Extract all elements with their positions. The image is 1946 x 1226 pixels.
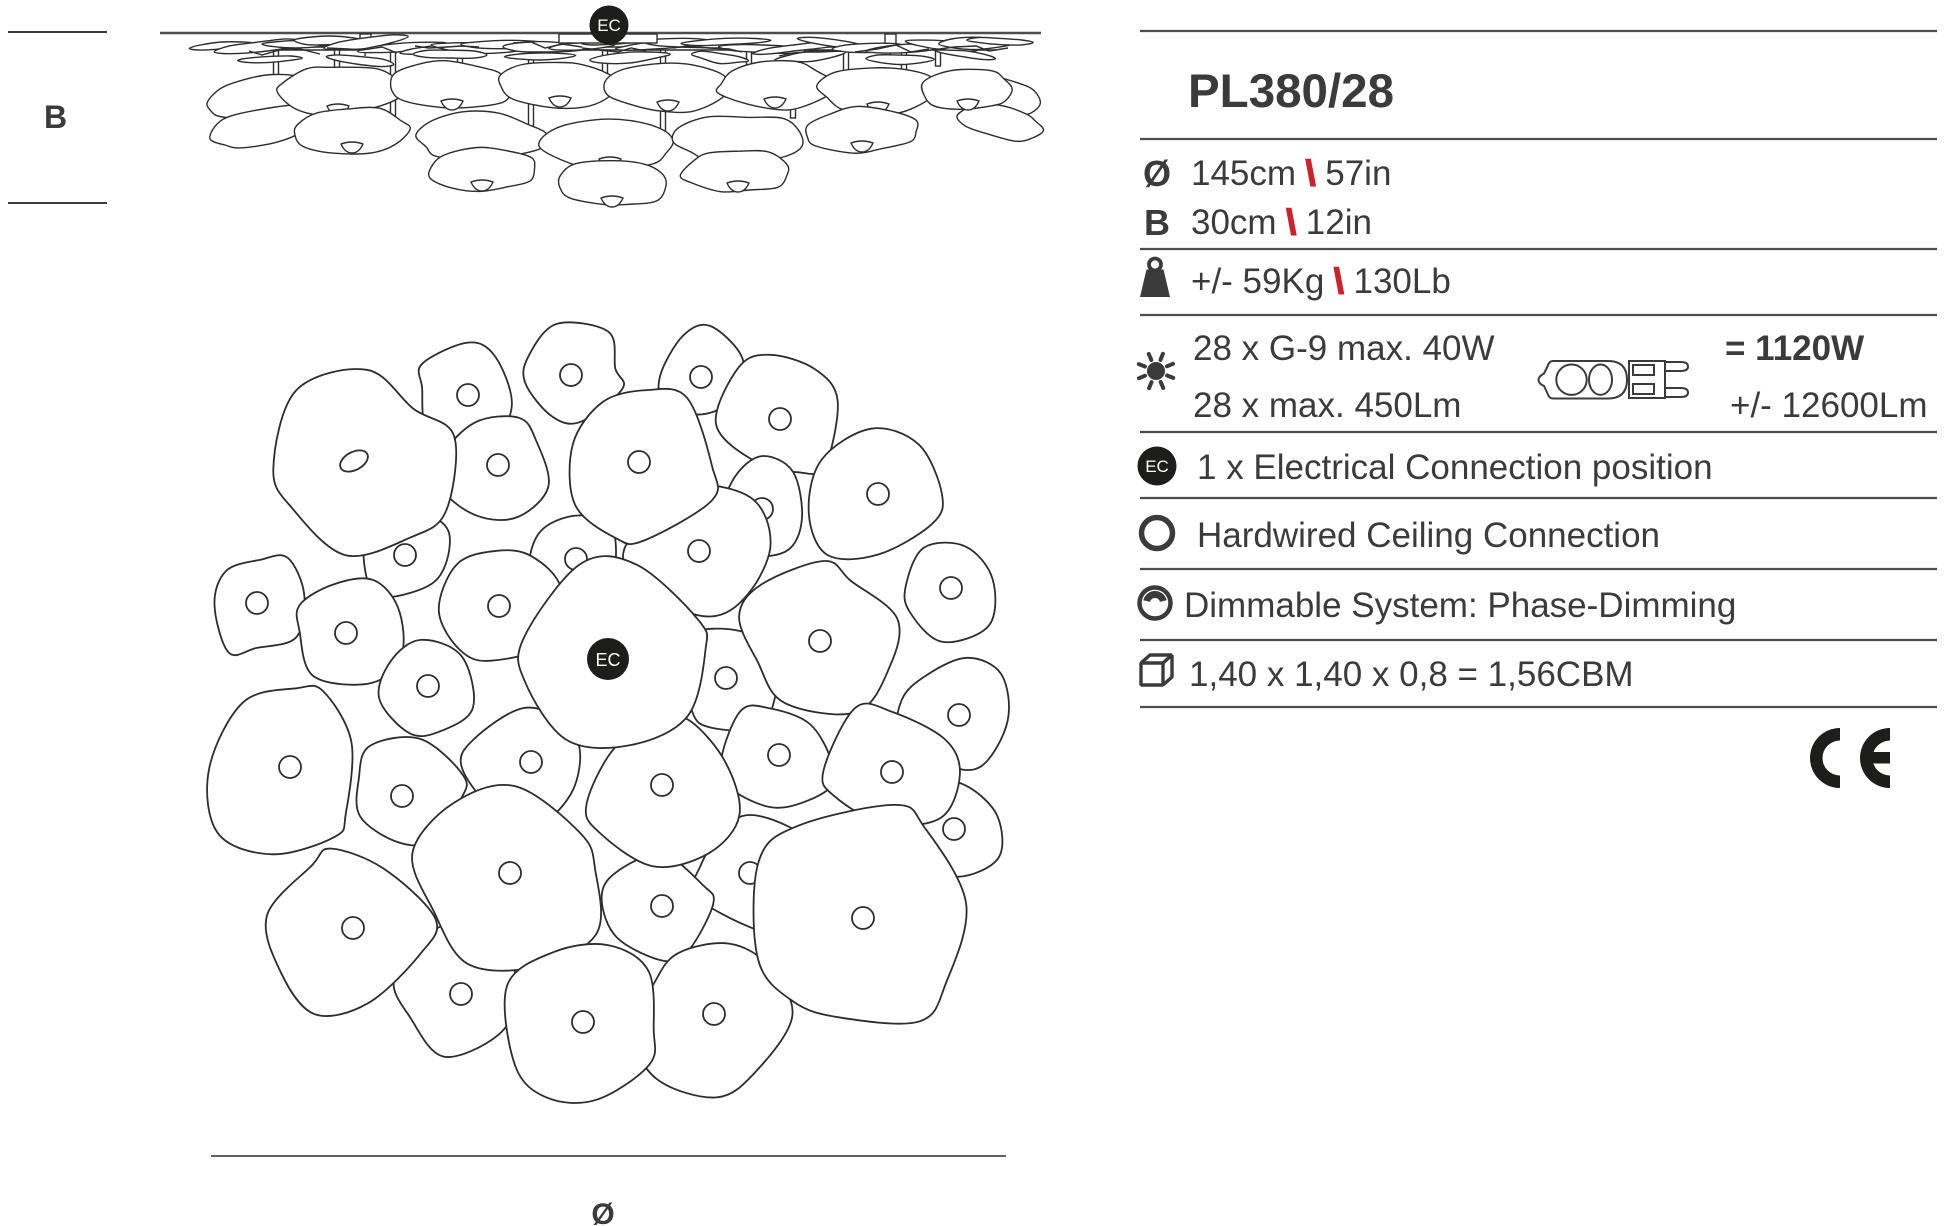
svg-text:28 x max. 450Lm: 28 x max. 450Lm <box>1193 386 1461 425</box>
svg-text:B: B <box>44 99 67 135</box>
svg-text:145cm \ 57in: 145cm \ 57in <box>1191 154 1391 193</box>
svg-text:Ø: Ø <box>1143 153 1171 194</box>
svg-text:30cm \ 12in: 30cm \ 12in <box>1191 203 1372 242</box>
svg-text:1 x Electrical Connection posi: 1 x Electrical Connection position <box>1197 448 1713 487</box>
svg-text:PL380/28: PL380/28 <box>1188 65 1394 118</box>
svg-text:Dimmable System: Phase-Dimming: Dimmable System: Phase-Dimming <box>1184 586 1736 625</box>
svg-text:B: B <box>1144 202 1170 243</box>
svg-text:EC: EC <box>1145 457 1169 476</box>
svg-text:EC: EC <box>597 16 621 35</box>
svg-text:Hardwired Ceiling Connection: Hardwired Ceiling Connection <box>1197 516 1660 555</box>
svg-text:28 x G-9 max. 40W: 28 x G-9 max. 40W <box>1193 329 1494 368</box>
svg-text:+/- 59Kg \ 130Lb: +/- 59Kg \ 130Lb <box>1191 262 1451 301</box>
svg-text:Ø: Ø <box>591 1198 614 1226</box>
svg-text:1,40 x 1,40 x 0,8 = 1,56CBM: 1,40 x 1,40 x 0,8 = 1,56CBM <box>1189 655 1634 694</box>
svg-text:EC: EC <box>595 650 620 670</box>
svg-text:= 1120W: = 1120W <box>1725 329 1864 368</box>
svg-text:+/- 12600Lm: +/- 12600Lm <box>1730 386 1928 425</box>
